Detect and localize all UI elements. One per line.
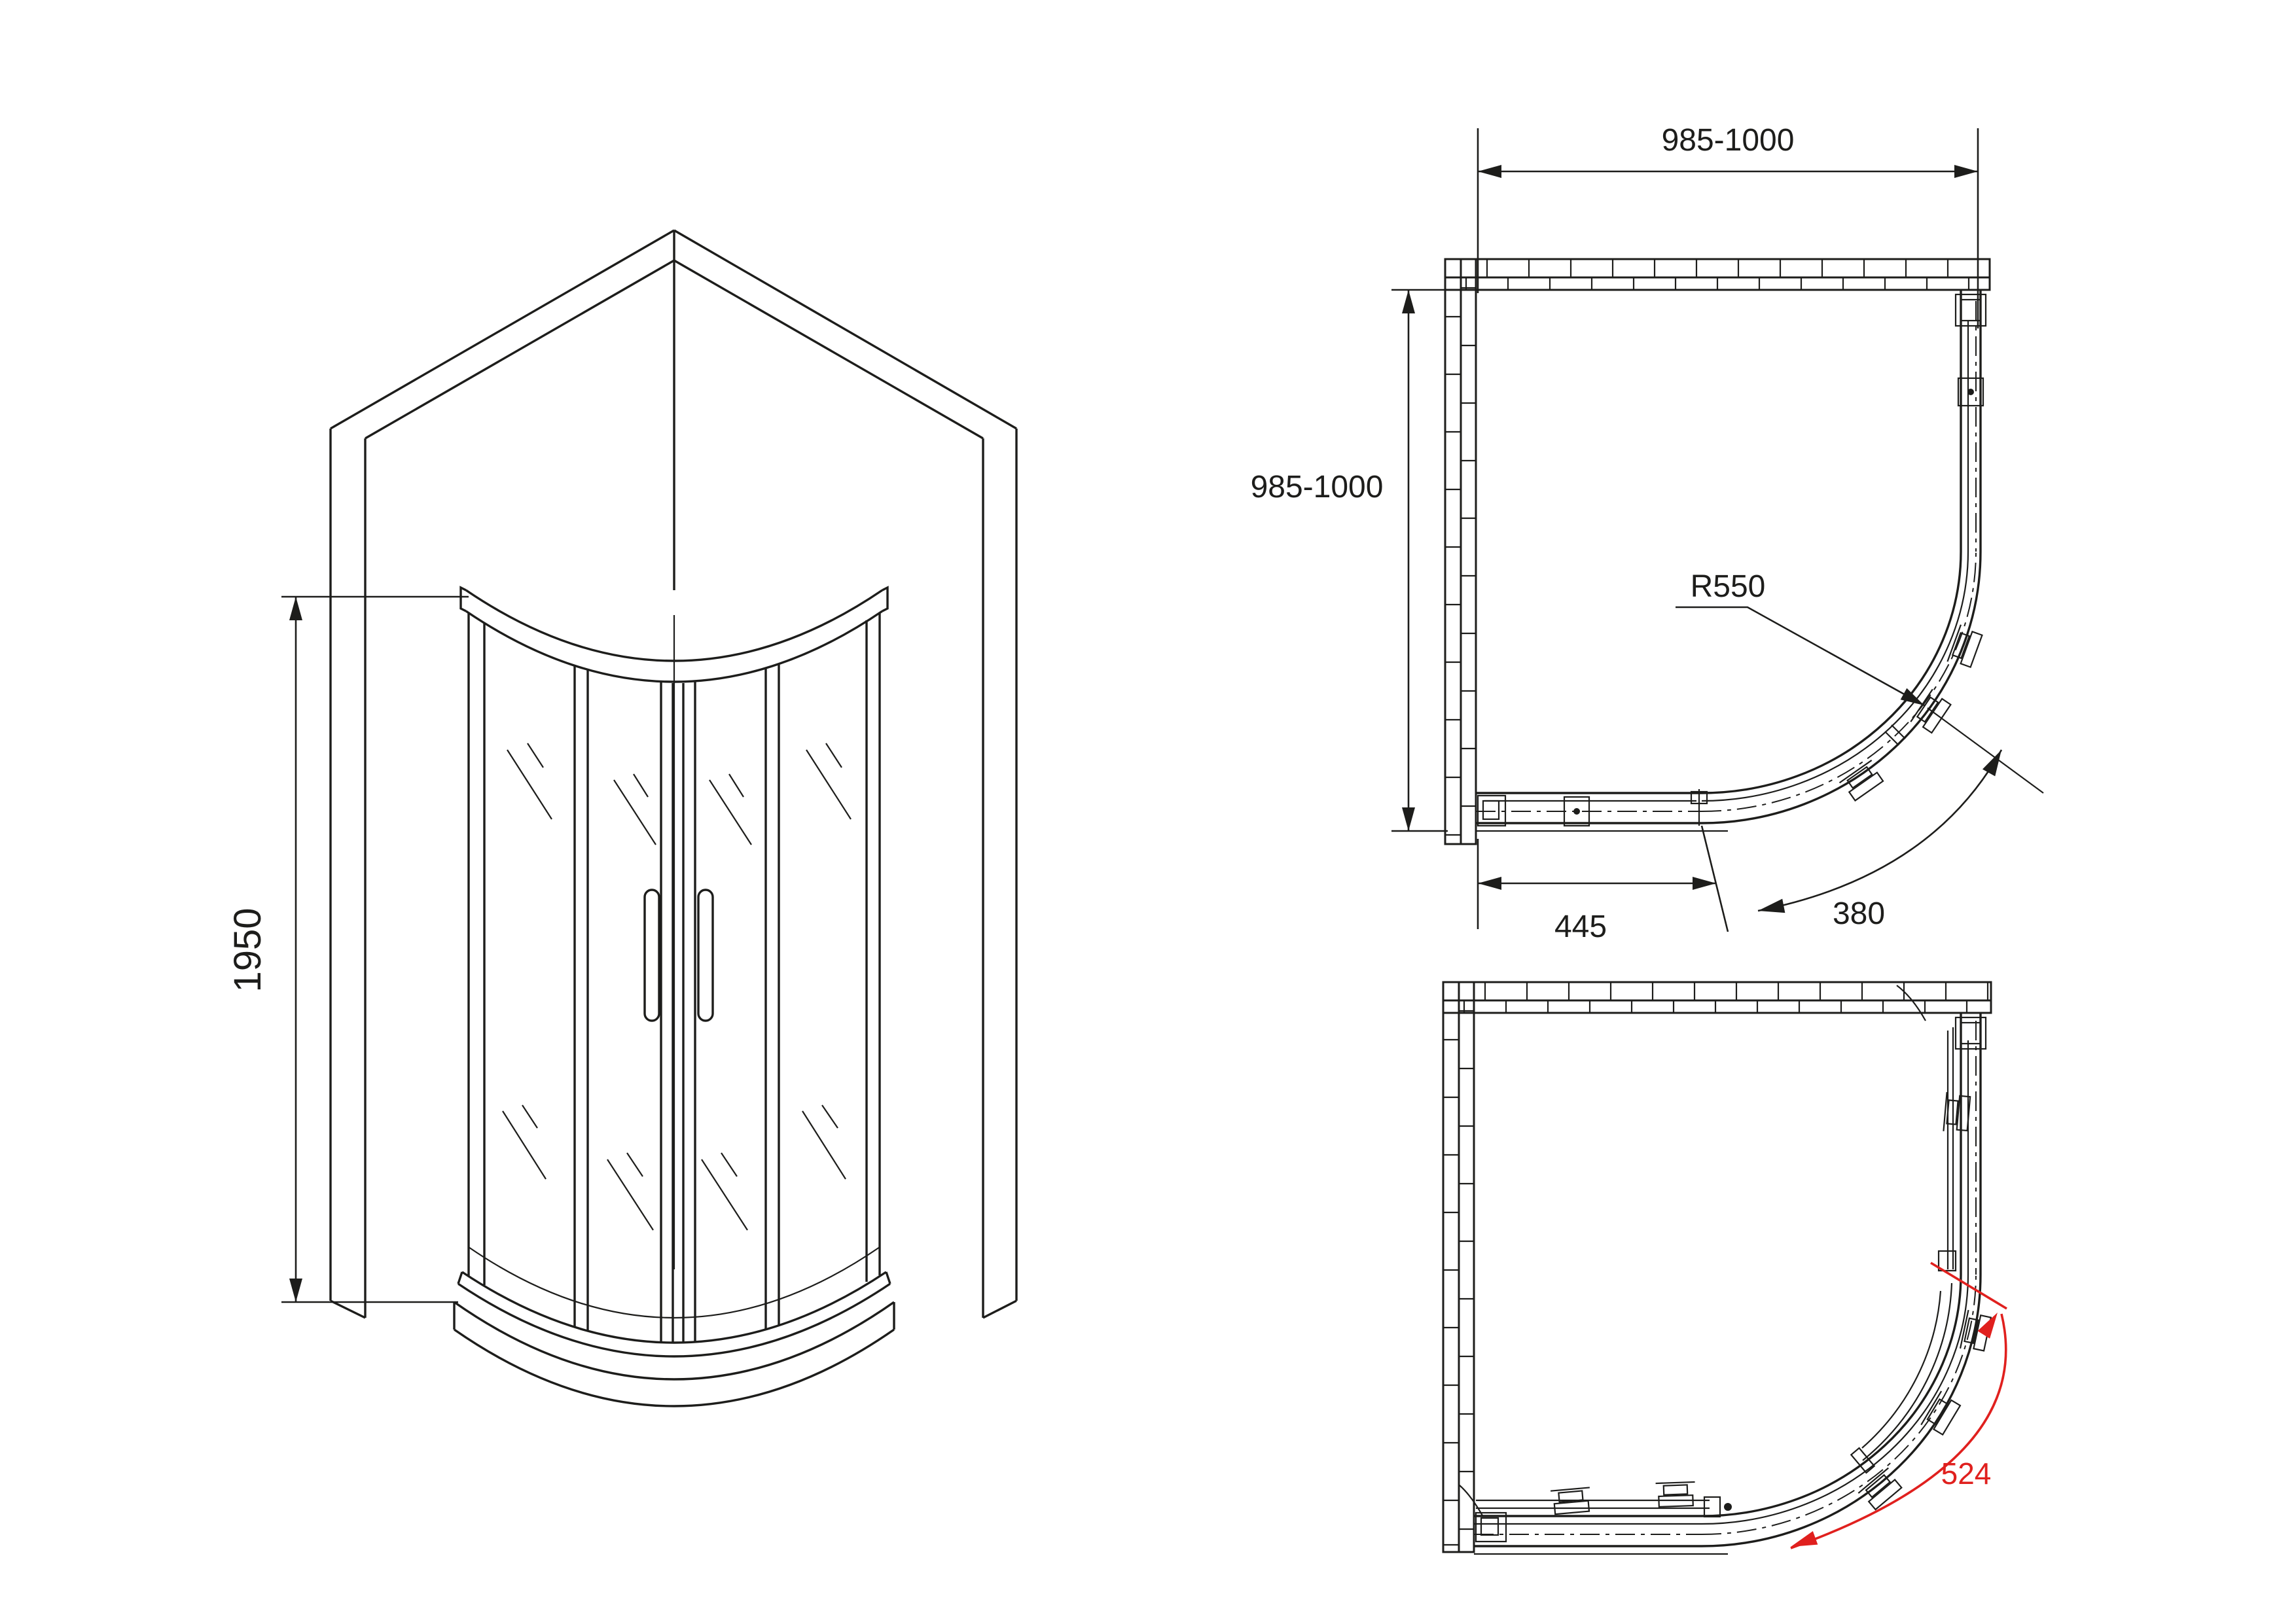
opening-arc-dimension: 380 (1757, 747, 2008, 931)
iso-glass-shines (503, 743, 851, 1230)
drawing-canvas: 1950 (0, 0, 2296, 1624)
width-dimension-label: 985-1000 (1662, 123, 1795, 158)
radius-callout: R550 (1676, 569, 2043, 793)
plan1-top-wall (1445, 259, 1990, 290)
iso-door-handles (645, 890, 713, 1021)
iso-tray (454, 1247, 894, 1406)
radius-label: R550 (1691, 569, 1766, 604)
door-opening-label: 380 (1833, 896, 1885, 931)
panel-width-dimension: 445 (1478, 826, 1728, 944)
plan2-curved-track (1702, 1275, 1992, 1546)
plan2-left-wall (1443, 982, 1474, 1552)
height-dimension: 1950 (226, 597, 469, 1302)
isometric-view: 1950 (226, 230, 1016, 1406)
depth-dimension-label: 985-1000 (1251, 470, 1384, 504)
handle-right (698, 890, 713, 1021)
plan2-bottom-track (1460, 1482, 1732, 1554)
plan-view-open: 524 (1443, 982, 2007, 1554)
width-dimension: 985-1000 (1478, 123, 1978, 328)
plan1-left-wall (1445, 259, 1476, 844)
plan1-bottom-track (1476, 789, 1728, 831)
handle-left (645, 890, 659, 1021)
plan1-right-panel (1956, 290, 1986, 552)
drawing-sheet: 1950 (0, 0, 2296, 1624)
height-dimension-label: 1950 (226, 908, 269, 992)
plan2-right-panel (1897, 985, 1986, 1275)
entry-width-label: 524 (1941, 1456, 1992, 1491)
panel-width-label: 445 (1554, 909, 1607, 944)
depth-dimension: 985-1000 (1251, 290, 1448, 831)
plan-view-closed: 985-1000 985-1000 R550 445 380 (1251, 123, 2043, 944)
